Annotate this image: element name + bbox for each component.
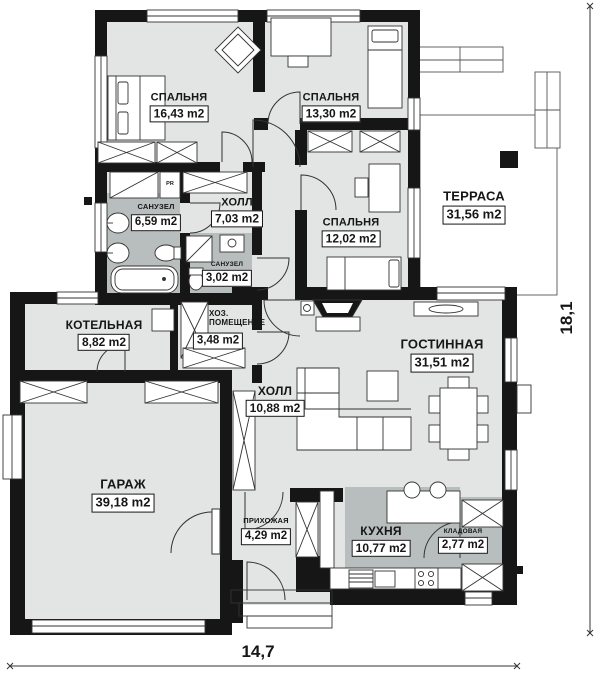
pr-closet-label: PR (166, 181, 174, 187)
room-area: 31,56 m2 (443, 206, 506, 225)
room-area: 6,59 m2 (131, 214, 181, 231)
room-name: ГАРАЖ (92, 478, 155, 493)
room-area: 7,03 m2 (211, 210, 263, 228)
room-label-entryway: ПРИХОЖАЯ 4,29 m2 (241, 517, 291, 545)
room-name: САНУЗЕЛ (202, 261, 252, 268)
room-area: 2,77 m2 (438, 537, 488, 554)
room-name: СПАЛЬНЯ (322, 216, 381, 229)
room-label-kitchen: КУХНЯ 10,77 m2 (352, 525, 411, 557)
room-area: 12,02 m2 (322, 230, 381, 248)
room-name: КЛАДОВАЯ (438, 528, 488, 535)
dimension-height-label: 18,1 (557, 301, 577, 334)
room-area: 8,82 m2 (78, 334, 130, 352)
room-label-garage: ГАРАЖ 39,18 m2 (92, 478, 155, 513)
room-name: СПАЛЬНЯ (302, 91, 361, 104)
room-area: 10,77 m2 (352, 540, 411, 558)
dimension-width-label: 14,7 (241, 642, 274, 662)
room-label-hall-big: ХОЛЛ 10,88 m2 (246, 385, 305, 417)
room-area: 10,88 m2 (246, 400, 305, 418)
room-name: ПРИХОЖАЯ (241, 517, 291, 526)
room-name: КОТЕЛЬНАЯ (66, 319, 143, 333)
floor-plan-page: СПАЛЬНЯ 16,43 m2 СПАЛЬНЯ 13,30 m2 ТЕРРАС… (0, 0, 600, 677)
room-label-bathroom-big: САНУЗЕЛ 6,59 m2 (131, 203, 181, 231)
room-label-bedroom-2: СПАЛЬНЯ 13,30 m2 (302, 91, 361, 122)
room-label-terrace: ТЕРРАСА 31,56 m2 (443, 190, 506, 225)
room-area: 16,43 m2 (150, 105, 209, 123)
room-labels-layer: СПАЛЬНЯ 16,43 m2 СПАЛЬНЯ 13,30 m2 ТЕРРАС… (0, 0, 600, 677)
room-label-utility-area: 3,48 m2 (193, 331, 243, 350)
room-label-bedroom-3: СПАЛЬНЯ 12,02 m2 (322, 216, 381, 247)
room-label-bathroom-small: САНУЗЕЛ 3,02 m2 (202, 261, 252, 287)
room-name: ГОСТИННАЯ (401, 338, 484, 353)
room-area: 31,51 m2 (411, 354, 474, 373)
room-name: САНУЗЕЛ (131, 203, 181, 212)
room-label-utility-name: ХОЗ. ПОМЕЩЕНИЕ (209, 309, 273, 327)
room-area: 39,18 m2 (92, 494, 155, 513)
room-name: ТЕРРАСА (443, 190, 506, 205)
room-label-hall-small: ХОЛЛ 7,03 m2 (211, 196, 263, 227)
room-label-boiler: КОТЕЛЬНАЯ 8,82 m2 (66, 319, 143, 351)
room-label-pantry: КЛАДОВАЯ 2,77 m2 (438, 528, 488, 554)
room-area: 4,29 m2 (241, 528, 291, 545)
room-area: 3,48 m2 (193, 333, 243, 350)
room-area: 3,02 m2 (202, 270, 252, 287)
room-name: ХОЛЛ (246, 385, 305, 399)
room-name: ХОЛЛ (211, 196, 263, 209)
room-area: 13,30 m2 (302, 105, 361, 123)
room-label-bedroom-1: СПАЛЬНЯ 16,43 m2 (150, 91, 209, 122)
room-name: ХОЗ. ПОМЕЩЕНИЕ (209, 309, 273, 327)
room-label-living: ГОСТИННАЯ 31,51 m2 (401, 338, 484, 373)
room-name: КУХНЯ (352, 525, 411, 539)
room-name: СПАЛЬНЯ (150, 91, 209, 104)
